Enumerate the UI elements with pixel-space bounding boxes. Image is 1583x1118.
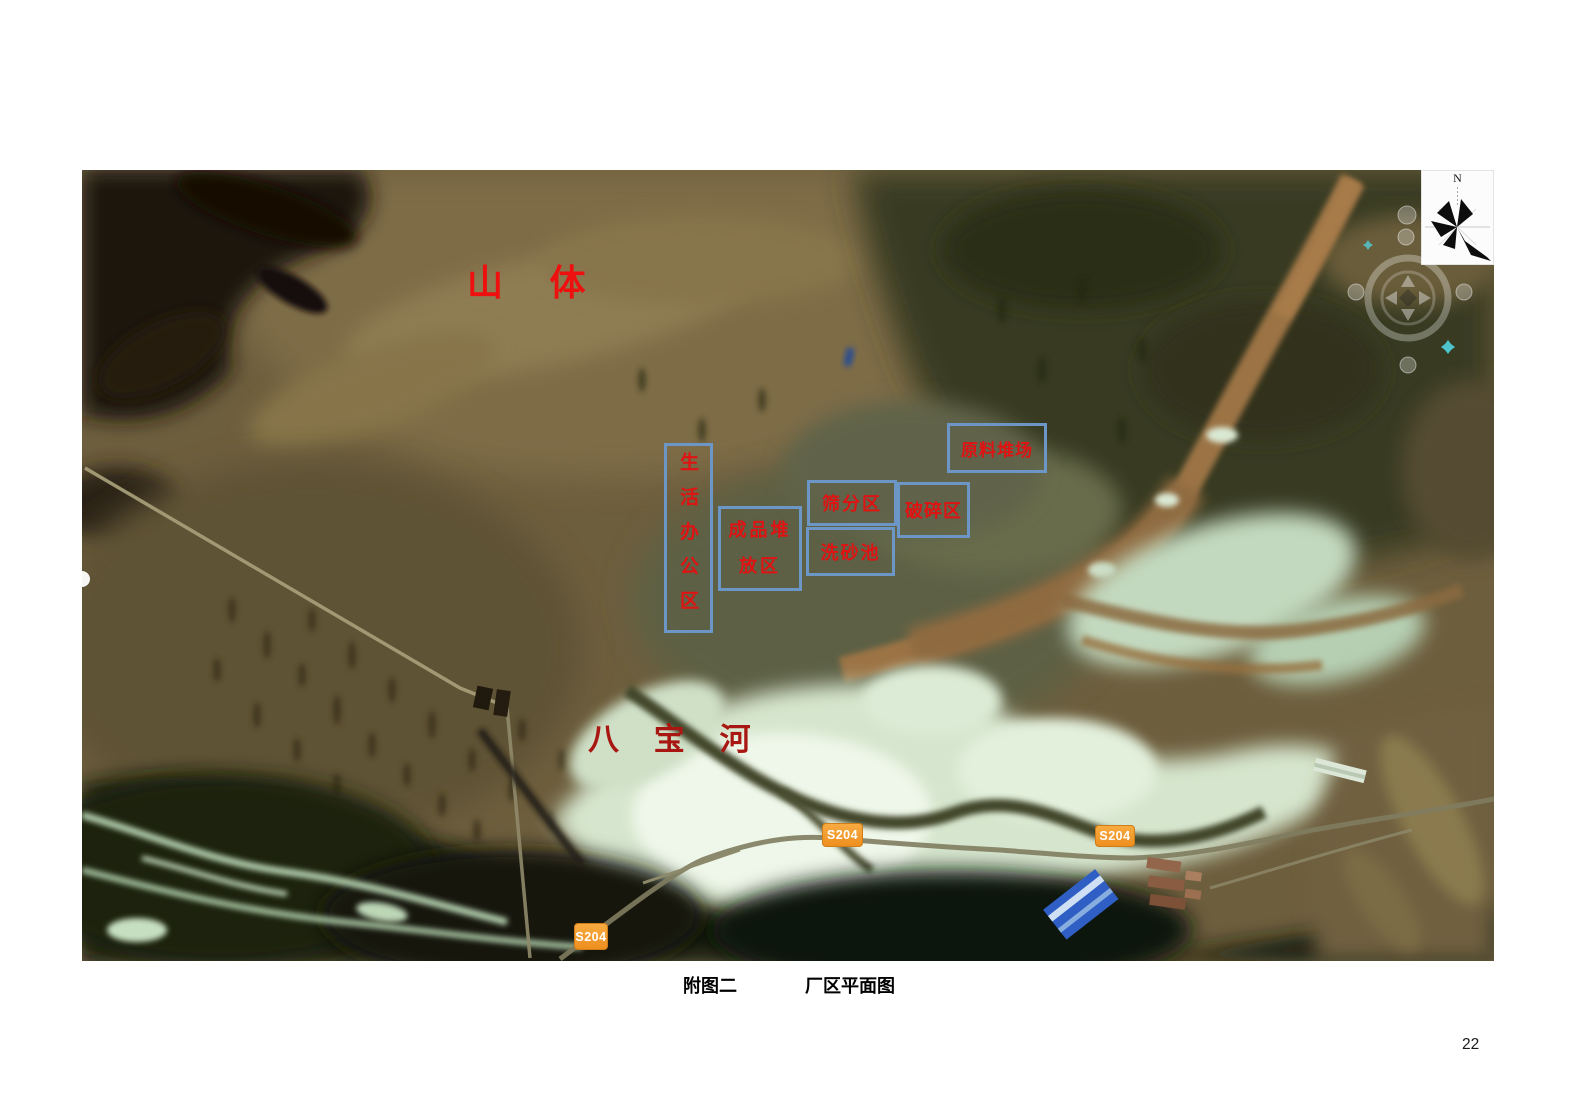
zone-sand-washing-label: 洗砂池 bbox=[821, 539, 881, 565]
zone-raw-material-yard: 原料堆场 bbox=[947, 423, 1047, 473]
road-badge-s204-right: S204 bbox=[1095, 825, 1135, 847]
zone-living-office-label: 生活办公区 bbox=[675, 452, 702, 625]
zone-living-office: 生活办公区 bbox=[664, 443, 713, 633]
page-number: 22 bbox=[1462, 1036, 1479, 1054]
zone-screening-label: 筛分区 bbox=[822, 490, 882, 516]
figure-title: 厂区平面图 bbox=[805, 976, 895, 997]
river-label: 八 宝 河 bbox=[588, 714, 753, 759]
road-badge-label: S204 bbox=[827, 828, 858, 842]
zone-raw-material-label: 原料堆场 bbox=[961, 436, 1033, 461]
zone-crushing-label: 破碎区 bbox=[905, 497, 962, 523]
road-badge-s204-bottom: S204 bbox=[574, 923, 608, 950]
zone-screening: 筛分区 bbox=[807, 480, 897, 526]
compass-rose: N bbox=[1421, 170, 1494, 265]
zone-finished-product-stacking: 成品堆放区 bbox=[718, 506, 802, 591]
document-page: 山 体 八 宝 河 生活办公区 成品堆放区 筛分区 洗砂池 破碎区 原料堆场 S… bbox=[0, 0, 1583, 1118]
figure-caption: 附图二厂区平面图 bbox=[683, 972, 895, 998]
zone-sand-washing-pool: 洗砂池 bbox=[806, 527, 895, 576]
zone-finished-product-label: 成品堆放区 bbox=[725, 513, 795, 583]
satellite-map: 山 体 八 宝 河 生活办公区 成品堆放区 筛分区 洗砂池 破碎区 原料堆场 S… bbox=[82, 170, 1494, 961]
mountain-label: 山 体 bbox=[467, 254, 589, 306]
road-badge-label: S204 bbox=[575, 930, 606, 944]
road-badge-label: S204 bbox=[1099, 829, 1130, 843]
figure-number: 附图二 bbox=[683, 976, 737, 997]
compass-rose-icon bbox=[1421, 170, 1494, 265]
zone-crushing: 破碎区 bbox=[897, 482, 970, 538]
road-badge-s204-center: S204 bbox=[822, 823, 863, 847]
